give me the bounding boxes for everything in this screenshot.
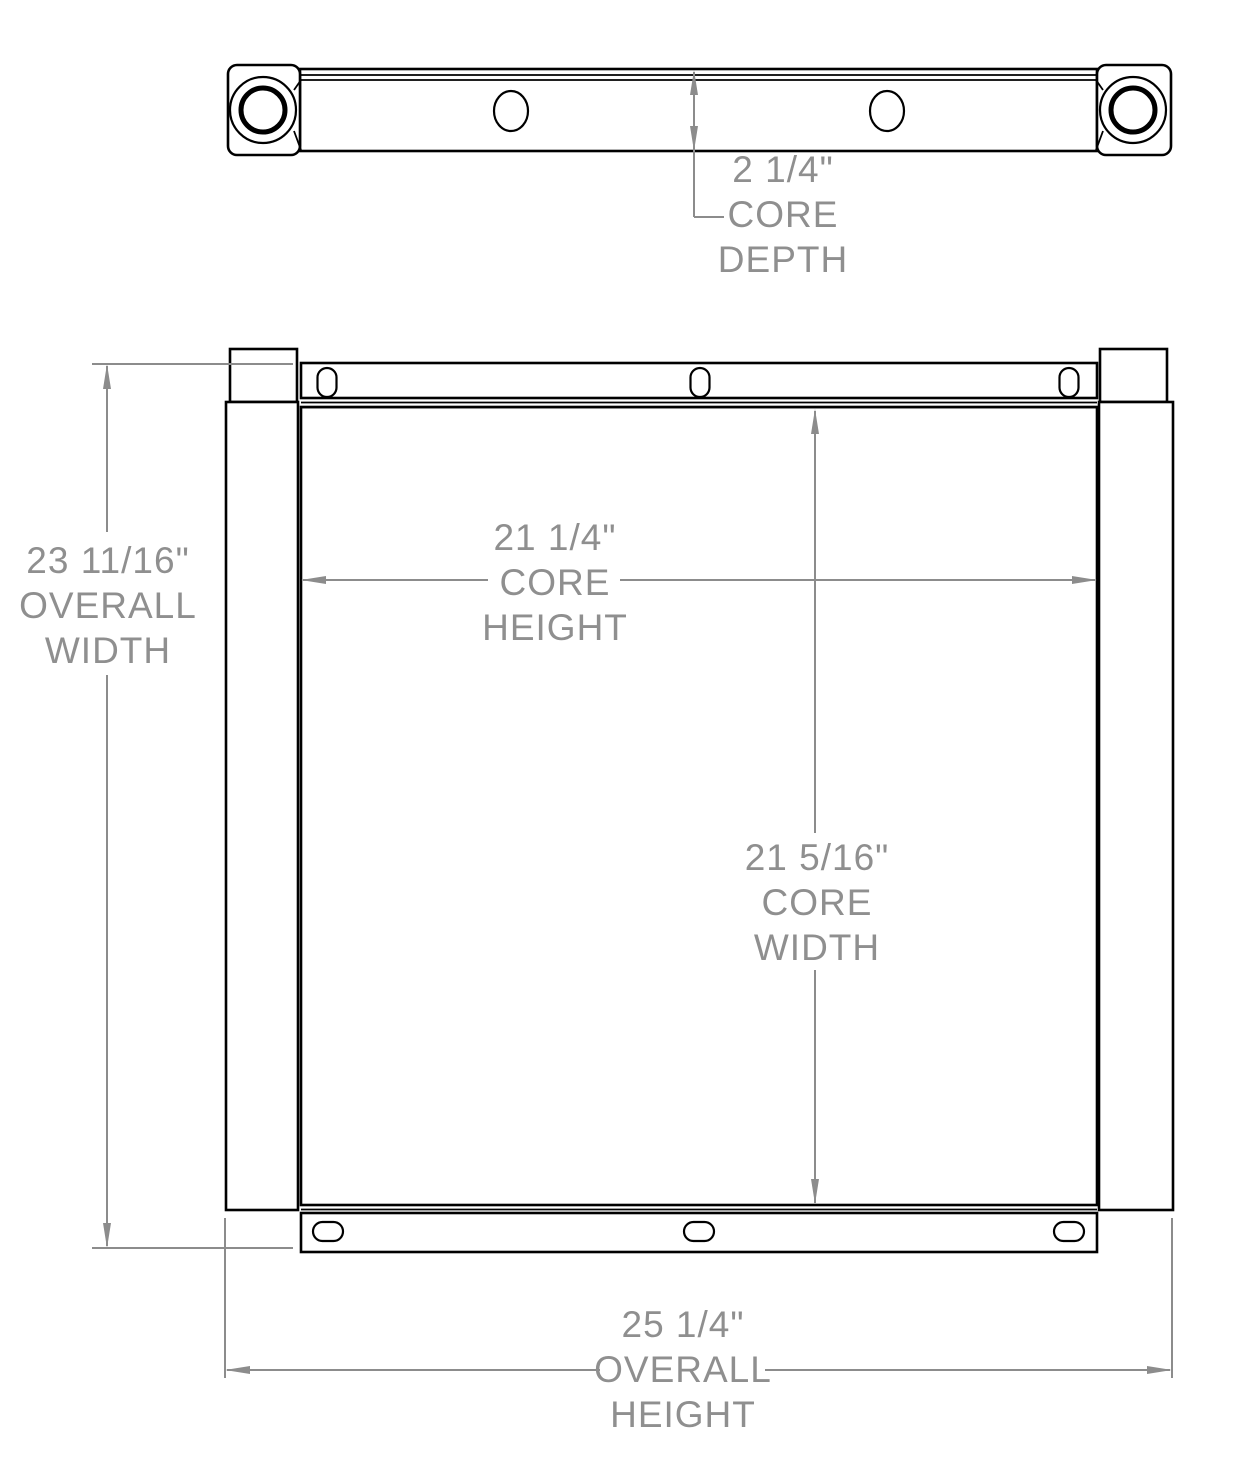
arrowhead-right — [1147, 1366, 1172, 1374]
front-view — [226, 349, 1173, 1252]
dim-core-width — [811, 409, 819, 1204]
technical-drawing-canvas: 2 1/4" CORE DEPTH 23 11/16" OVERALL WIDT… — [0, 0, 1253, 1461]
arrowhead-right — [1072, 576, 1097, 584]
core-face — [301, 407, 1097, 1205]
dimension-label-line: HEIGHT — [482, 605, 628, 650]
top-view-core-bar — [300, 69, 1097, 151]
dimension-label-line: CORE — [482, 560, 628, 605]
arrowhead-up — [103, 364, 111, 389]
dimension-label-line: OVERALL — [594, 1347, 772, 1392]
arrowhead-up — [811, 409, 819, 434]
dimension-value: 21 1/4" — [482, 515, 628, 560]
dimension-value: 23 11/16" — [19, 538, 197, 583]
dimension-label-line: HEIGHT — [594, 1392, 772, 1437]
dimension-label-line: WIDTH — [19, 628, 197, 673]
oil-cooler-drawing — [0, 0, 1253, 1461]
core-depth-dimension-label: 2 1/4" CORE DEPTH — [718, 147, 848, 282]
arrowhead-down — [811, 1179, 819, 1204]
top-view — [228, 65, 1171, 155]
dimension-value: 21 5/16" — [745, 835, 890, 880]
bottom-mounting-flange — [301, 1213, 1097, 1252]
arrowhead-down — [103, 1223, 111, 1248]
dim-core-height — [301, 576, 1097, 584]
core-height-dimension-label: 21 1/4" CORE HEIGHT — [482, 515, 628, 650]
overall-width-dimension-label: 23 11/16" OVERALL WIDTH — [19, 538, 197, 673]
top-left-tab — [230, 349, 297, 402]
left-tank — [226, 402, 298, 1210]
right-tank — [1099, 402, 1173, 1210]
core-width-dimension-label: 21 5/16" CORE WIDTH — [745, 835, 890, 970]
arrowhead-left — [225, 1366, 250, 1374]
dimension-value: 2 1/4" — [718, 147, 848, 192]
arrowhead-left — [301, 576, 326, 584]
dimension-label-line: CORE — [745, 880, 890, 925]
dimension-label-line: WIDTH — [745, 925, 890, 970]
top-right-tab — [1100, 349, 1167, 402]
right-port-block — [1097, 65, 1171, 155]
overall-height-dimension-label: 25 1/4" OVERALL HEIGHT — [594, 1302, 772, 1437]
dimension-label-line: CORE — [718, 192, 848, 237]
dimension-label-line: DEPTH — [718, 237, 848, 282]
dimension-label-line: OVERALL — [19, 583, 197, 628]
dimension-value: 25 1/4" — [594, 1302, 772, 1347]
